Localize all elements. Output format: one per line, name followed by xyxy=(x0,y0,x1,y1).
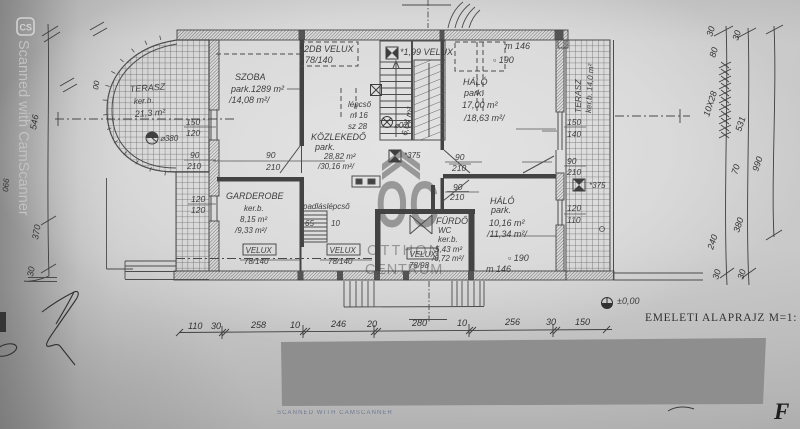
svg-text:▫ 190: ▫ 190 xyxy=(493,55,514,65)
svg-text:90: 90 xyxy=(266,150,276,160)
svg-text:▫ 190: ▫ 190 xyxy=(508,253,529,263)
svg-text:ker.b.: ker.b. xyxy=(134,96,154,106)
svg-text:*1,99 VELUX: *1,99 VELUX xyxy=(400,47,454,57)
svg-text:lépcső: lépcső xyxy=(348,100,372,109)
svg-text:FÜRDŐ: FÜRDŐ xyxy=(436,216,468,226)
svg-text:8,15 m²: 8,15 m² xyxy=(240,215,267,224)
svg-text:OTTHON: OTTHON xyxy=(367,243,441,259)
svg-text:VELUX: VELUX xyxy=(330,246,357,255)
svg-text:10X28: 10X28 xyxy=(701,90,719,118)
svg-text:park.: park. xyxy=(490,205,511,215)
svg-text:park.: park. xyxy=(314,142,335,152)
svg-text:00: 00 xyxy=(91,79,102,90)
svg-text:246: 246 xyxy=(330,319,346,329)
svg-text:210: 210 xyxy=(186,161,201,171)
svg-text:90: 90 xyxy=(190,150,200,160)
svg-text:70: 70 xyxy=(729,163,742,176)
svg-text:210: 210 xyxy=(566,167,581,177)
svg-text:CENTRUM: CENTRUM xyxy=(365,262,443,278)
svg-text:120: 120 xyxy=(191,205,205,215)
svg-text:F: F xyxy=(773,399,789,424)
svg-text:140: 140 xyxy=(567,129,581,139)
svg-text:KÖZLEKEDŐ: KÖZLEKEDŐ xyxy=(311,132,366,142)
svg-text:ker.b.: ker.b. xyxy=(244,204,264,213)
svg-text:110: 110 xyxy=(188,321,202,331)
svg-text:/9,33 m²/: /9,33 m²/ xyxy=(234,226,267,235)
svg-text:m 146: m 146 xyxy=(505,41,530,51)
svg-text:120: 120 xyxy=(191,194,205,204)
svg-text:OC: OC xyxy=(376,167,440,242)
svg-text:sz 28: sz 28 xyxy=(348,122,368,131)
svg-text:30: 30 xyxy=(730,29,743,42)
svg-text:/11,34 m²/: /11,34 m²/ xyxy=(486,229,528,239)
svg-text:±0,00: ±0,00 xyxy=(617,296,639,306)
svg-text:30: 30 xyxy=(25,266,37,278)
svg-text:80: 80 xyxy=(707,46,720,59)
svg-text:258: 258 xyxy=(250,320,266,330)
svg-text:10: 10 xyxy=(331,219,340,228)
svg-text:CS: CS xyxy=(20,23,33,33)
svg-text:EMELETI ALAPRAJZ M=1:: EMELETI ALAPRAJZ M=1: xyxy=(645,312,797,324)
svg-text:m 146: m 146 xyxy=(486,264,511,274)
svg-text:30: 30 xyxy=(710,268,723,281)
svg-text:/30,16 m²/: /30,16 m²/ xyxy=(317,162,355,171)
svg-text:/14,08 m²/: /14,08 m²/ xyxy=(228,95,271,105)
svg-text:SCANNED WITH CAMSCANNER: SCANNED WITH CAMSCANNER xyxy=(277,410,393,416)
svg-text:210: 210 xyxy=(451,163,466,173)
svg-text:370: 370 xyxy=(30,224,42,241)
svg-text:150: 150 xyxy=(575,317,590,327)
svg-text:240: 240 xyxy=(705,233,719,251)
svg-text:90: 90 xyxy=(567,156,577,166)
svg-text:2DB VELUX: 2DB VELUX xyxy=(303,44,355,54)
svg-text:380: 380 xyxy=(731,216,745,233)
svg-text:30: 30 xyxy=(546,317,556,327)
svg-text:120: 120 xyxy=(186,128,200,138)
svg-text:531: 531 xyxy=(733,115,747,132)
svg-text:150: 150 xyxy=(186,117,200,127)
svg-text:m 16: m 16 xyxy=(350,111,368,120)
svg-text:10: 10 xyxy=(290,320,300,330)
svg-text:150: 150 xyxy=(567,117,581,127)
svg-text:210: 210 xyxy=(449,192,464,202)
svg-text:65: 65 xyxy=(305,219,314,228)
svg-text:Scanned with CamScanner: Scanned with CamScanner xyxy=(15,40,31,216)
svg-text:*375: *375 xyxy=(589,181,606,190)
svg-text:WC: WC xyxy=(438,226,452,235)
svg-text:10,16 m²: 10,16 m² xyxy=(489,218,526,228)
svg-text:10: 10 xyxy=(457,318,467,328)
svg-text:066: 066 xyxy=(1,178,11,193)
svg-text:TERASZ: TERASZ xyxy=(573,79,583,113)
svg-text:210: 210 xyxy=(265,162,280,172)
svg-text:park.1289 m²: park.1289 m² xyxy=(230,84,285,94)
svg-text:28,82 m²: 28,82 m² xyxy=(323,152,356,161)
svg-text:padláslépcső: padláslépcső xyxy=(302,202,350,211)
svg-text:30: 30 xyxy=(735,268,748,281)
svg-text:17,00 m²: 17,00 m² xyxy=(462,100,499,110)
svg-text:78/140: 78/140 xyxy=(244,257,269,266)
svg-text:90: 90 xyxy=(455,152,465,162)
svg-text:/18,63 m²/: /18,63 m²/ xyxy=(463,113,506,123)
svg-text:256: 256 xyxy=(504,317,520,327)
svg-text:HÁLÓ: HÁLÓ xyxy=(463,77,488,87)
svg-text:990: 990 xyxy=(750,155,764,172)
svg-text:⌀380: ⌀380 xyxy=(160,134,179,143)
svg-text:GARDEROBE: GARDEROBE xyxy=(226,191,285,201)
svg-text:30: 30 xyxy=(211,321,221,331)
svg-text:120: 120 xyxy=(567,203,581,213)
svg-text:78/140: 78/140 xyxy=(328,257,353,266)
svg-text:SZOBA: SZOBA xyxy=(235,72,266,82)
svg-text:VELUX: VELUX xyxy=(246,246,273,255)
svg-text:90: 90 xyxy=(453,182,463,192)
svg-text:20: 20 xyxy=(366,319,377,329)
svg-text:park.: park. xyxy=(463,88,484,98)
svg-text:78/140: 78/140 xyxy=(305,55,333,65)
svg-text:110: 110 xyxy=(567,215,581,225)
svg-text:280: 280 xyxy=(411,318,427,328)
